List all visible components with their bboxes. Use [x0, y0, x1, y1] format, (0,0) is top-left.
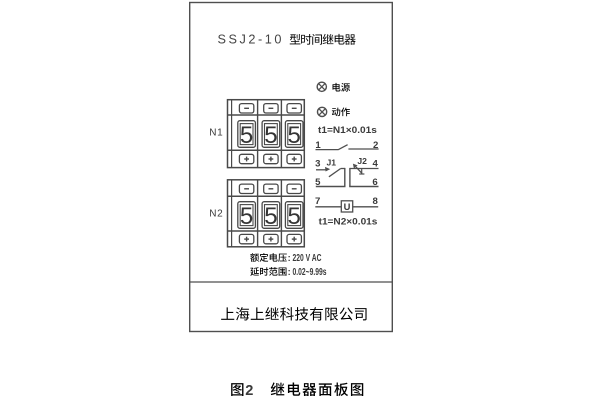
- svg-text:J1: J1: [327, 158, 337, 168]
- svg-text:4: 4: [373, 158, 379, 169]
- svg-text::: :: [288, 253, 291, 263]
- svg-text:3: 3: [315, 158, 320, 169]
- svg-text:7: 7: [315, 196, 320, 207]
- svg-text::: :: [288, 267, 291, 277]
- svg-text:2: 2: [373, 140, 378, 151]
- svg-text:N1: N1: [209, 127, 223, 138]
- svg-text:5: 5: [288, 203, 301, 230]
- svg-text:SSJ2-10: SSJ2-10: [218, 33, 285, 47]
- svg-text:5: 5: [315, 177, 321, 188]
- svg-text:8: 8: [373, 196, 379, 207]
- svg-text:N2: N2: [209, 209, 223, 220]
- svg-text:5: 5: [240, 122, 253, 149]
- svg-text:5: 5: [264, 203, 277, 230]
- svg-text:t1=N2×0.01s: t1=N2×0.01s: [319, 215, 378, 226]
- svg-text:0.02~9.99s: 0.02~9.99s: [293, 267, 327, 278]
- svg-text:J2: J2: [357, 156, 367, 166]
- svg-text:6: 6: [372, 177, 377, 188]
- svg-text:U: U: [344, 201, 351, 212]
- svg-text:5: 5: [288, 122, 301, 149]
- svg-text:5: 5: [264, 122, 277, 149]
- svg-text:5: 5: [240, 203, 253, 230]
- svg-text:2: 2: [245, 383, 253, 399]
- svg-text:t1=N1×0.01s: t1=N1×0.01s: [318, 124, 377, 135]
- svg-text:220 V AC: 220 V AC: [293, 253, 322, 264]
